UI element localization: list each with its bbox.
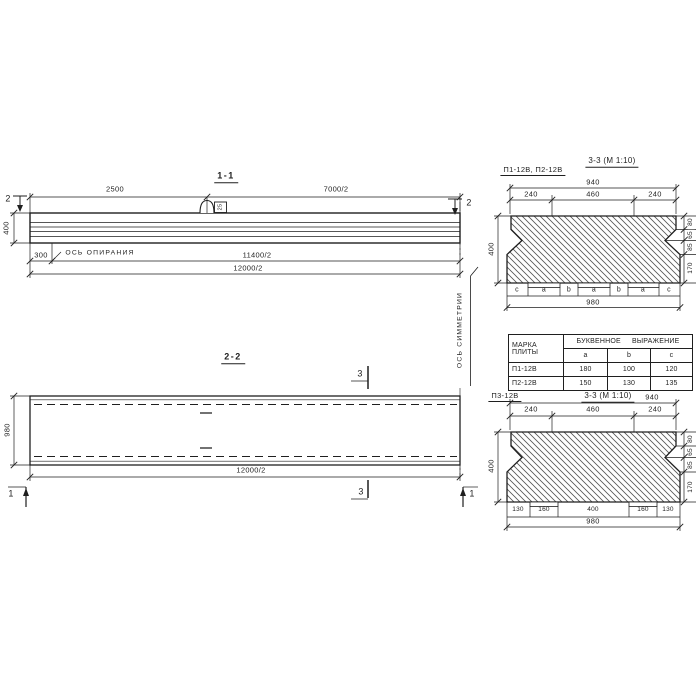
- dim-240-left: 240: [524, 190, 537, 198]
- dim-300: 300: [34, 251, 47, 259]
- letter-b-2: b: [617, 287, 621, 294]
- table-cell-mark: П2-12В: [509, 377, 564, 391]
- letter-c-1: c: [515, 287, 519, 294]
- dim-65: 65: [687, 230, 694, 240]
- table-cell-a: 180: [564, 363, 608, 377]
- slab-mark-table: МАРКА ПЛИТЫ БУКВЕННОЕ ВЫРАЖЕНИЕ a b c П1…: [508, 334, 693, 391]
- dim-400-xsec-top: 400: [487, 242, 495, 255]
- dim-240-right: 240: [648, 190, 661, 198]
- table-cell-b: 100: [608, 363, 651, 377]
- letter-a-1: a: [542, 287, 546, 294]
- table-col-a: a: [564, 349, 608, 363]
- table-cell-c: 135: [651, 377, 693, 391]
- cross-section-body-hatched: [507, 216, 680, 283]
- table-row: П1-12В 180 100 120: [509, 363, 693, 377]
- mark-label-p1-p2: П1-12В, П2-12В: [500, 166, 565, 176]
- table-cell-c: 120: [651, 363, 693, 377]
- dim-lines-bottom: [30, 243, 460, 278]
- dim-80: 80: [687, 434, 694, 444]
- section-2-2-plan: [8, 366, 478, 507]
- section-title-3-3-bottom: 3-3 (М 1:10): [581, 392, 634, 403]
- plan-outline: [30, 396, 460, 465]
- cut-label-2-left: 2: [5, 195, 10, 204]
- blueprint-canvas: 1-1 2500 7000/2 2 2 400 300 ось опирания…: [0, 0, 700, 700]
- dim-980-xsec-bottom: 980: [586, 517, 599, 525]
- cross-section-body-hatched: [507, 432, 680, 502]
- table-cell-b: 130: [608, 377, 651, 391]
- dim-940-top: 940: [586, 178, 599, 186]
- dim-line-height: [10, 213, 30, 243]
- cut-label-1-right: 1: [469, 490, 474, 499]
- table-col-b: b: [608, 349, 651, 363]
- dim-400-bottom-chain: 400: [587, 507, 598, 514]
- section-title-3-3-top: 3-3 (М 1:10): [585, 157, 638, 168]
- section-title-2-2: 2-2: [221, 352, 245, 364]
- table-header-mark: МАРКА ПЛИТЫ: [509, 335, 564, 363]
- dim-980-xsec-top: 980: [586, 298, 599, 306]
- dim-170: 170: [687, 480, 694, 493]
- table-col-c: c: [651, 349, 693, 363]
- dim-460: 460: [586, 190, 599, 198]
- table-header-expression: БУКВЕННОЕ ВЫРАЖЕНИЕ: [564, 335, 693, 349]
- cut-label-1-left: 1: [8, 490, 13, 499]
- table-cell-mark: П1-12В: [509, 363, 564, 377]
- support-axis-label: ось опирания: [64, 251, 135, 258]
- dim-460: 460: [586, 405, 599, 413]
- letter-a-3: a: [641, 287, 645, 294]
- dim-80: 80: [687, 217, 694, 227]
- dim-160-left: 160: [538, 507, 549, 514]
- mark-label-p3: П3-12В: [488, 392, 521, 402]
- cut-marker-2-left: [13, 196, 27, 212]
- table-row: П2-12В 150 130 135: [509, 377, 693, 391]
- section-title-1-1: 1-1: [214, 171, 238, 183]
- dim-130-right: 130: [662, 507, 673, 514]
- dim-11400-2: 11400/2: [242, 251, 273, 259]
- dim-160-right: 160: [637, 507, 648, 514]
- cut-label-3-bottom: 3: [358, 488, 363, 497]
- dim-line-width: [10, 396, 30, 465]
- dim-12000-2-elevation: 12000/2: [232, 264, 263, 272]
- dim-940-bottom: 940: [644, 393, 659, 401]
- dim-130-left: 130: [512, 507, 523, 514]
- dim-400-xsec-bottom: 400: [487, 459, 495, 472]
- dim-7000-2: 7000/2: [324, 185, 349, 193]
- dim-240-left: 240: [524, 405, 537, 413]
- dim-240-right: 240: [648, 405, 661, 413]
- dim-400-elevation: 400: [2, 221, 10, 234]
- dim-85: 85: [687, 460, 694, 470]
- dim-170: 170: [687, 261, 694, 274]
- letter-a-2: a: [592, 287, 596, 294]
- table-cell-a: 150: [564, 377, 608, 391]
- dim-12000-2-plan: 12000/2: [235, 466, 266, 474]
- dim-980-plan: 980: [3, 423, 11, 436]
- dim-65: 65: [687, 447, 694, 457]
- dim-line-top: [30, 193, 460, 213]
- symmetry-axis-flag: [471, 267, 479, 386]
- letter-b-1: b: [567, 287, 571, 294]
- dim-85: 85: [687, 242, 694, 252]
- beam-outline: [30, 213, 460, 243]
- letter-c-2: c: [667, 287, 671, 294]
- symmetry-axis-label: ось симметрии: [458, 291, 465, 369]
- dim-2500: 2500: [106, 185, 124, 193]
- loop-tag: 25: [218, 204, 224, 211]
- cut-label-2-right: 2: [466, 199, 471, 208]
- cut-label-3-top: 3: [357, 370, 362, 379]
